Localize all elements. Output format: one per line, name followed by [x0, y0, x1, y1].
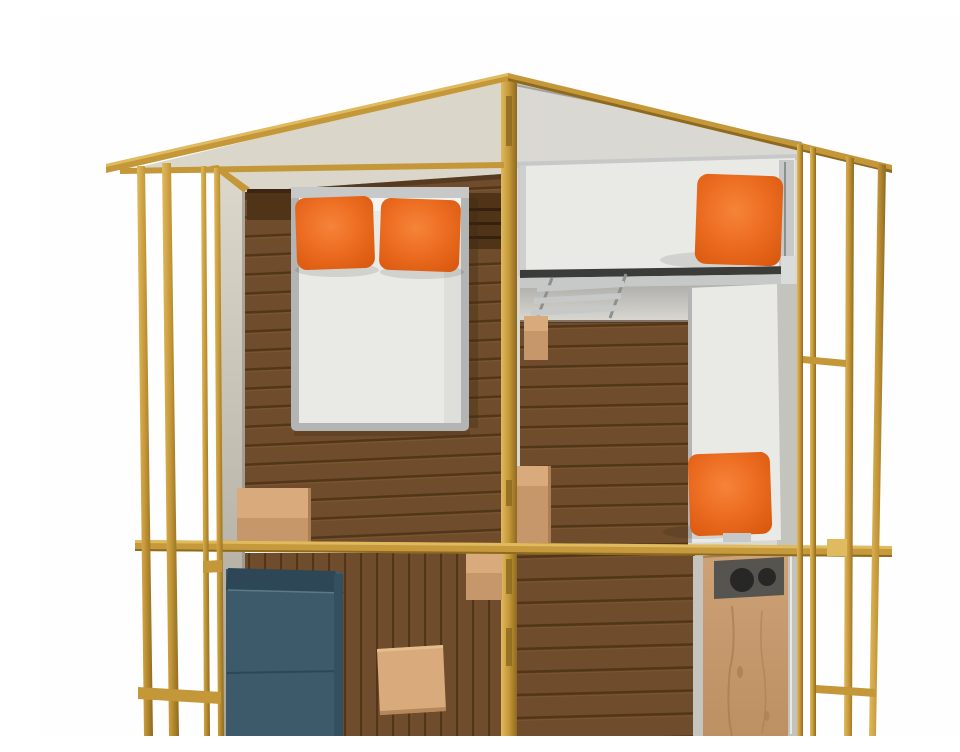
- frame-post: [797, 144, 803, 736]
- center-post: [501, 76, 517, 736]
- bedroom-bunks: [508, 154, 802, 546]
- lodge-cutaway-figure: Cutaway 3D illustration of a timber-fram…: [40, 16, 960, 736]
- storage-box-living: [466, 553, 502, 600]
- wood-knot: [737, 666, 743, 678]
- lodge-cutaway-illustration: [40, 16, 960, 736]
- sink-hole-large: [730, 568, 754, 592]
- orange-pillow-right: [379, 198, 461, 273]
- sofa-backrest: [226, 568, 344, 593]
- headboard-shelf: [247, 189, 293, 220]
- double-bed: [291, 187, 478, 436]
- teal-sofa: [226, 568, 344, 736]
- living-area: [226, 553, 502, 736]
- kitchen-floor: [517, 553, 695, 736]
- post-mortise: [506, 628, 512, 666]
- cabinet-strip-highlight: [790, 556, 792, 734]
- bed-shadow-right: [469, 198, 478, 428]
- post-mortise: [506, 96, 512, 146]
- bench-bracket: [723, 533, 751, 542]
- beam-connector-block: [827, 539, 847, 556]
- bunk-left-rail: [518, 166, 526, 276]
- frame-rung: [203, 560, 222, 573]
- tall-storage-box: [517, 466, 551, 543]
- step-box: [524, 316, 548, 360]
- sink-hole-small: [758, 568, 776, 586]
- cabinet-right-strip: [788, 553, 798, 736]
- post-mortise: [506, 559, 512, 594]
- kitchenette: [517, 552, 798, 736]
- orange-pillow-left: [295, 196, 375, 271]
- frame-post: [810, 147, 816, 736]
- bed-head-rail: [291, 187, 469, 198]
- bunk-corner-bracket: [781, 256, 795, 286]
- post-mortise: [506, 480, 512, 506]
- storage-bench: [237, 488, 311, 542]
- orange-pillow-bunk: [694, 174, 783, 267]
- orange-cushion-bench: [688, 452, 773, 537]
- headboard-shelf-edge: [247, 189, 293, 193]
- pine-table: [377, 645, 446, 715]
- sofa-side-shade: [334, 574, 343, 736]
